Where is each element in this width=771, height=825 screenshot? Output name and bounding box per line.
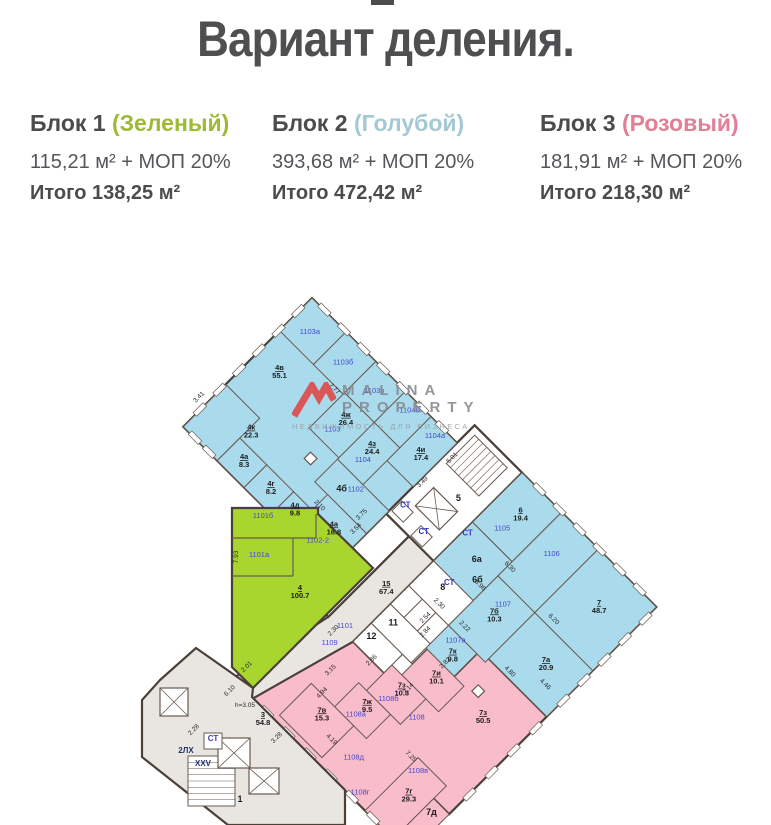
room-label: 4д9.8 xyxy=(290,500,300,517)
unit-label: 1108д xyxy=(343,753,364,762)
unit-label: 1105 xyxy=(494,524,510,533)
svg-text:1101б: 1101б xyxy=(253,511,273,520)
unit-label: 1104б xyxy=(399,406,419,415)
unit-label: 1103в xyxy=(364,386,384,395)
plan-label: 11 xyxy=(389,617,399,627)
plan-label: 4б xyxy=(336,484,347,494)
svg-text:7.93: 7.93 xyxy=(233,550,240,563)
plan-label: 1 xyxy=(237,794,242,804)
unit-label: 1103б xyxy=(333,357,353,366)
room-label: 7ж9.5 xyxy=(362,697,373,714)
floor-plan: 7.772.103.753.544.613.495.016.305.966.20… xyxy=(0,0,771,825)
unit-label: 1108в xyxy=(408,766,428,775)
plan-label: 2ЛХ xyxy=(178,746,194,755)
plan-label: СТ xyxy=(444,578,455,587)
plan-label: 6б xyxy=(472,574,483,584)
unit-label: 1104а xyxy=(425,431,446,440)
plan-label: 7д xyxy=(426,807,437,817)
unit-label: 1107а xyxy=(445,635,466,644)
page: { "header": { "title": "Вариант деления.… xyxy=(0,0,771,825)
unit-label: 1104 xyxy=(355,455,371,464)
plan-label: СТ xyxy=(400,500,411,509)
plan-label: 6а xyxy=(472,554,483,564)
plan-label: 5 xyxy=(456,493,461,503)
svg-text:1101а: 1101а xyxy=(249,550,270,559)
plan-label: СТ xyxy=(208,734,219,743)
plan-label: h=3.05 xyxy=(235,702,255,709)
plan-label: XXV xyxy=(195,759,212,768)
unit-label: 1102 xyxy=(348,485,364,494)
plan-label: СТ xyxy=(418,527,429,536)
unit-label: 1109 xyxy=(322,638,338,647)
dimension: 3.41 xyxy=(192,390,206,404)
unit-label: 1102-2 xyxy=(306,536,329,545)
plan-label: 12 xyxy=(366,631,376,641)
unit-label: 1106 xyxy=(544,549,560,558)
unit-label: 1108 xyxy=(409,712,425,721)
unit-label: 1103а xyxy=(300,327,321,336)
svg-text:1101: 1101 xyxy=(337,621,353,630)
unit-label: 1108г xyxy=(351,787,370,796)
room-label: 4а8.3 xyxy=(239,452,249,469)
room-label: 7к9.8 xyxy=(447,647,457,664)
plan-label: СТ xyxy=(462,529,473,538)
